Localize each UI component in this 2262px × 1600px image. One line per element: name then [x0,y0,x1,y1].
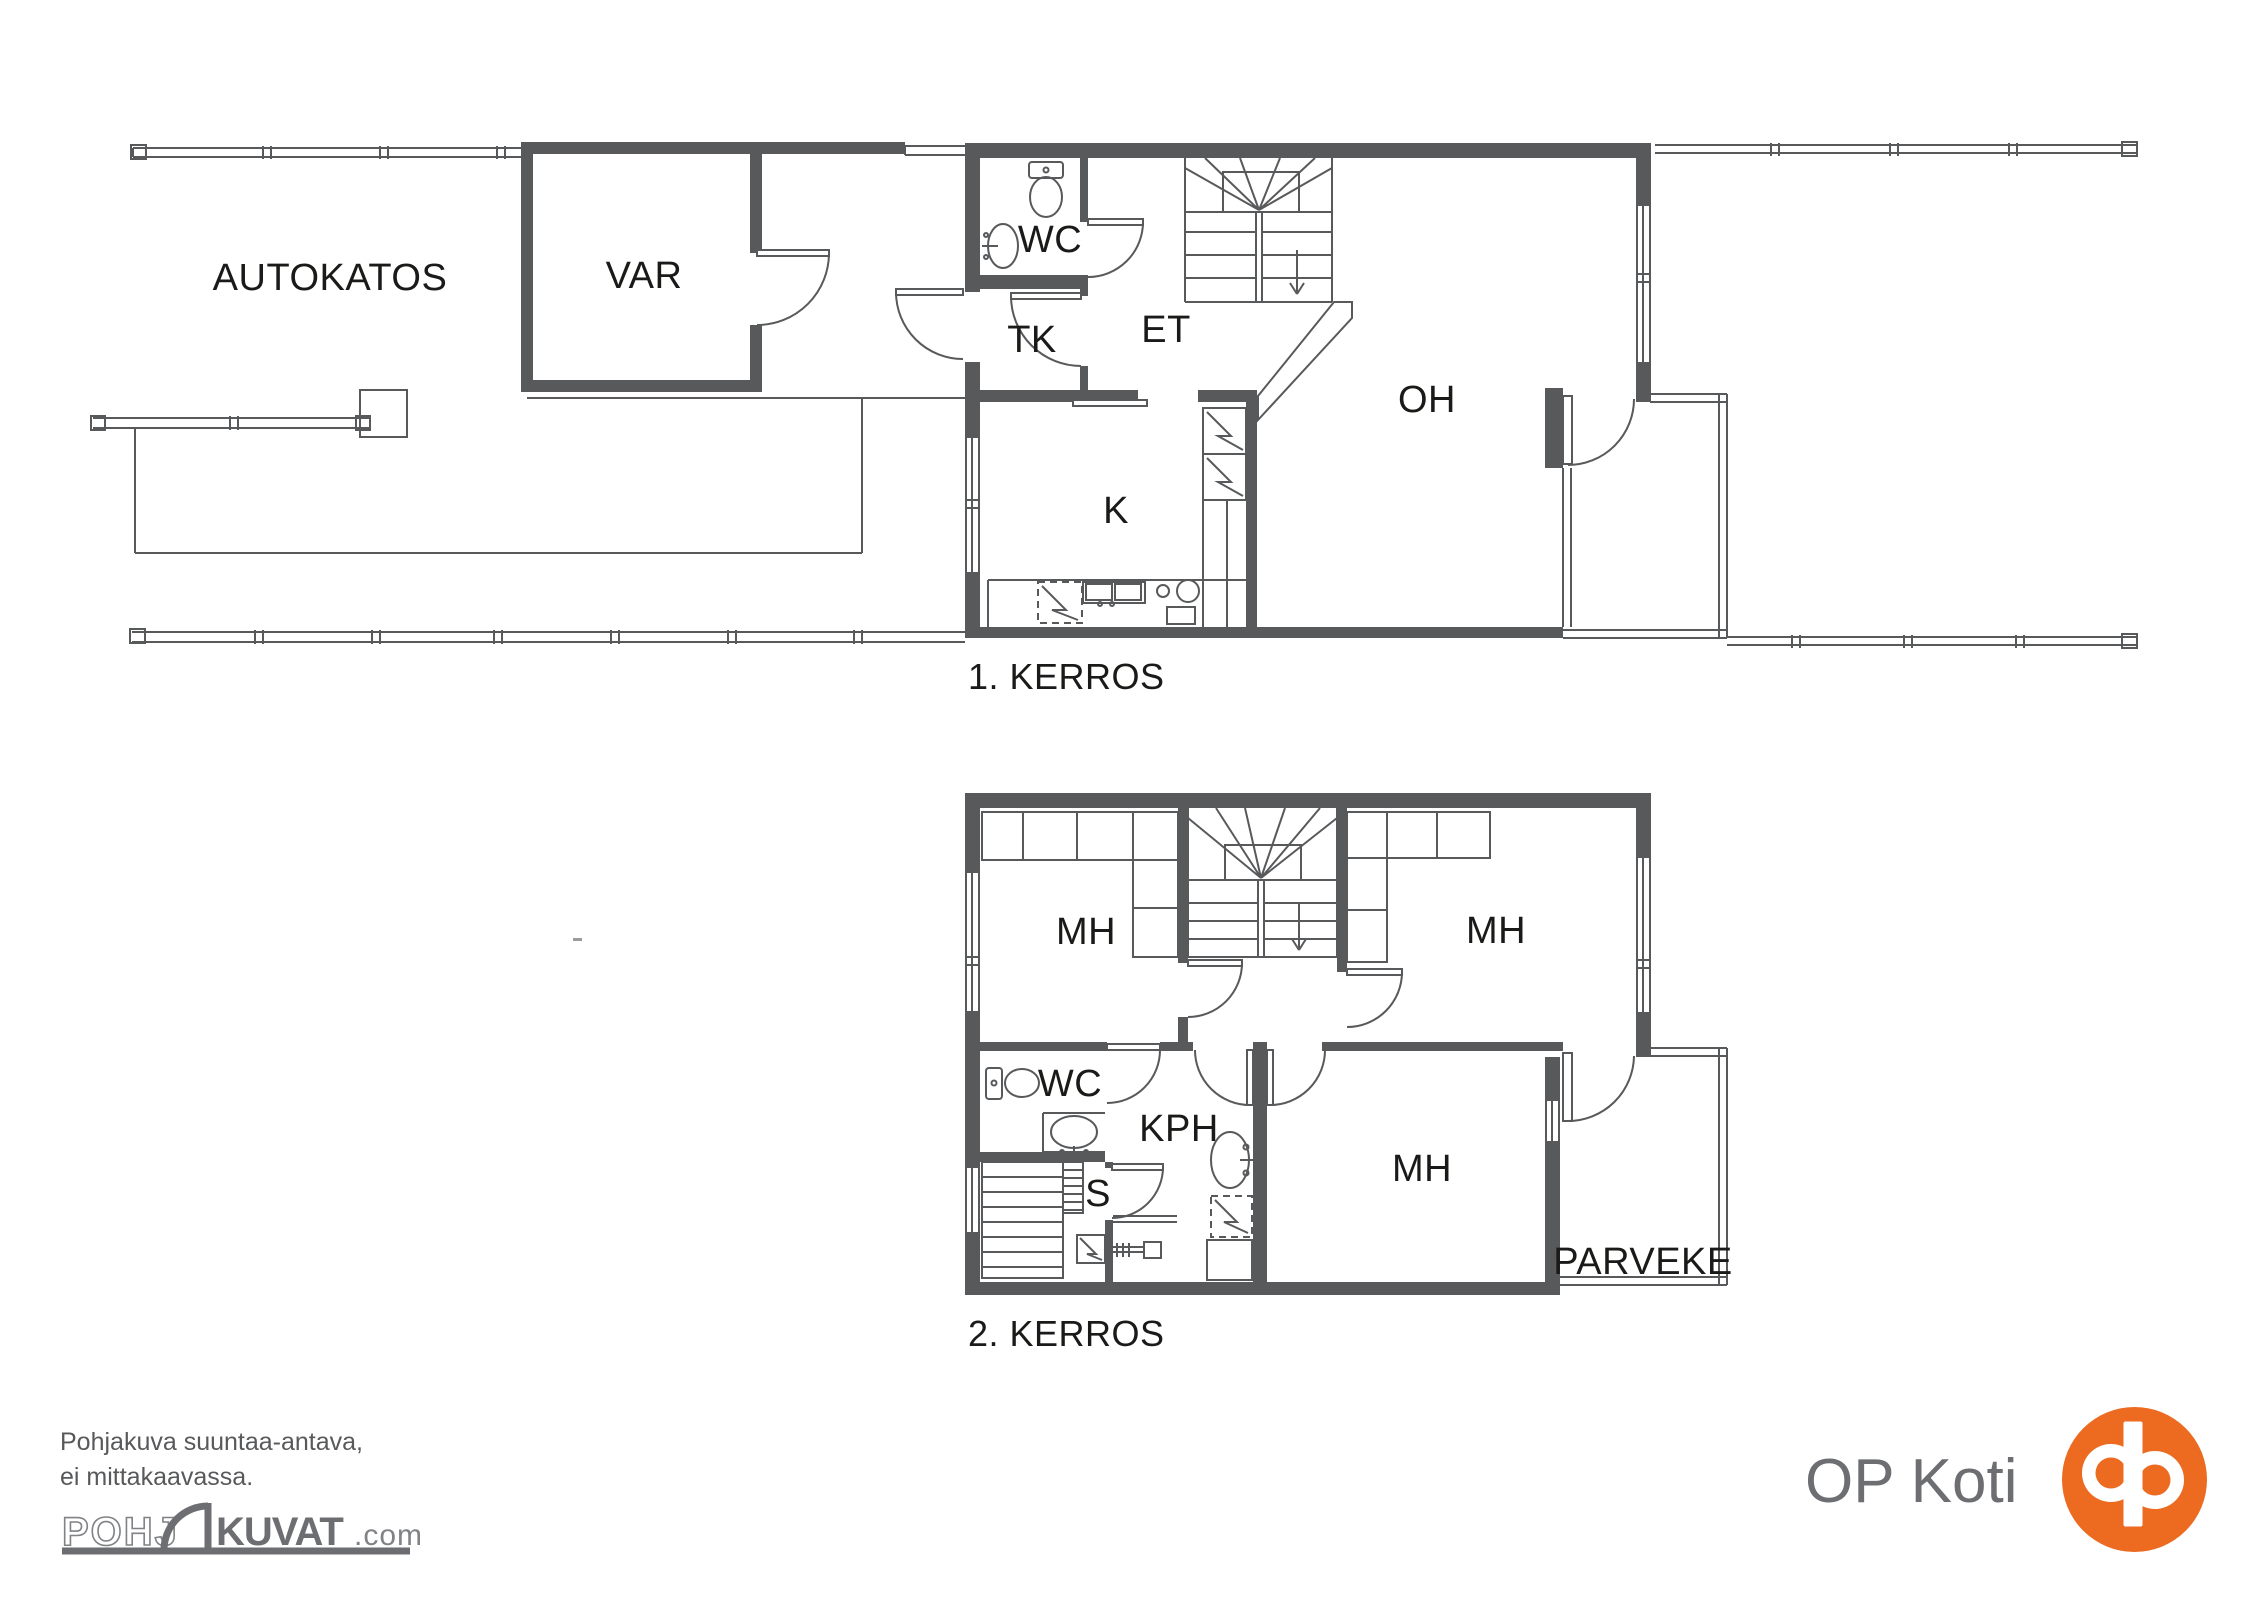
toilet-icon [1029,162,1063,217]
mh-bottom-door [1267,1050,1325,1105]
kitchen-sink-icon [1083,582,1145,606]
washer-icon [1211,1196,1252,1237]
floor1-caption: 1. KERROS [968,656,1165,697]
sauna-stove-icon [1077,1235,1105,1263]
op-logo-icon [2062,1407,2207,1552]
tall-cabinets [1203,408,1246,627]
floor1-diagonal-partition [1258,302,1352,420]
room-label-s: S [1085,1173,1111,1215]
room-label-k: K [1103,490,1129,532]
room-label-et: ET [1141,309,1191,351]
room-label-mh-right: MH [1466,910,1526,952]
room-label-mh-bottom: MH [1392,1148,1452,1190]
room-label-var: VAR [606,255,683,297]
mh-right-door [1347,969,1402,1027]
shower-icon [1113,1242,1161,1258]
floorplan-canvas: AUTOKATOS VAR WC TK ET OH K 1. KERROS [0,0,2262,1600]
room-label-wc2: WC [1038,1063,1102,1105]
kph-door [1195,1050,1253,1105]
floor1-labels: AUTOKATOS VAR WC TK ET OH K 1. KERROS [213,219,1456,697]
stove-icon [1157,580,1199,624]
floor2-caption: 2. KERROS [968,1313,1165,1354]
sauna-benches [982,1162,1177,1278]
floor2-stairs [1188,808,1337,957]
room-label-wc1: WC [1018,219,1082,261]
floor1-walls [521,142,1651,638]
op-koti-text: OP Koti [1805,1447,2018,1516]
room-label-autokatos: AUTOKATOS [213,257,448,299]
stray-mark [573,938,582,941]
logo-kuvat-text: KUVAT [216,1510,343,1554]
floor2-walls [965,793,1651,1295]
sink-icon [982,224,1018,268]
disclaimer-line2: ei mittakaavassa. [60,1463,253,1491]
floor1-stairs [1185,158,1332,302]
toilet2-icon [986,1068,1039,1099]
kph-cabinet [1207,1240,1252,1280]
room-label-oh: OH [1398,379,1456,421]
kitchen-passthrough-shelf [1073,400,1147,406]
mh-left-door [1188,960,1242,1017]
op-koti-brand: OP Koti [1805,1407,2207,1552]
floor2-fixtures [986,1068,1253,1280]
room-label-tk: TK [1007,319,1057,361]
footer-disclaimer: Pohjakuva suuntaa-antava, ei mittakaavas… [60,1428,363,1491]
logo-com-text: .com [354,1519,423,1552]
sauna-door [1112,1164,1163,1218]
floor1-terrace [1563,394,1727,638]
sink2-icon [1043,1113,1105,1156]
room-label-kph: KPH [1139,1108,1219,1150]
room-label-parveke: PARVEKE [1553,1241,1733,1283]
fridge-icon [1038,582,1082,623]
wc1-door [1088,219,1143,277]
room-label-mh-left: MH [1056,911,1116,953]
disclaimer-line1: Pohjakuva suuntaa-antava, [60,1428,363,1456]
terrace-door [1563,396,1634,465]
front-door [896,289,963,359]
var-door [757,250,829,325]
wc2-door [1107,1044,1160,1103]
pohjakuvat-logo: POHJ KUVAT .com [62,1503,423,1554]
balcony-door [1563,1053,1634,1121]
